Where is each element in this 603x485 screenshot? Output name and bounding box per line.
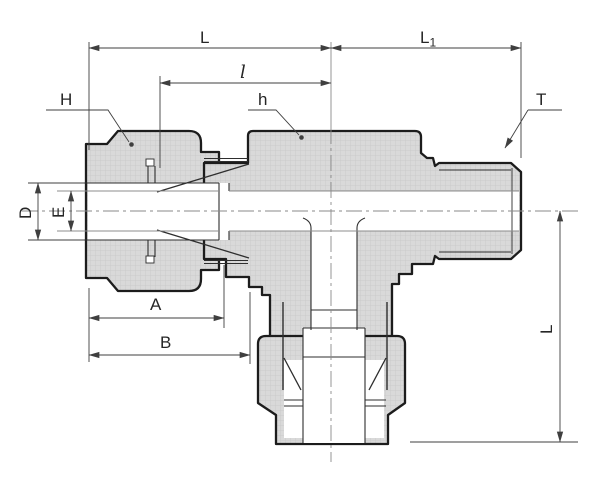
ferrule-detail-top	[146, 159, 154, 166]
bottom-gap-left	[284, 360, 303, 438]
label-L1-subscript: 1	[429, 36, 436, 50]
label-center-to-end-l: l	[240, 62, 246, 83]
fitting-body	[204, 131, 521, 360]
label-nut-length-A: A	[150, 295, 162, 314]
tube-end-gap	[219, 183, 229, 240]
label-tube-id-E: E	[49, 207, 68, 218]
leader-h-dot	[299, 135, 304, 140]
label-nut-hex-H: H	[60, 90, 72, 109]
label-thread-T: T	[536, 90, 546, 109]
label-overall-length-L: L	[200, 28, 209, 47]
label-right-length-L1: L1	[420, 28, 436, 50]
drawing-area: L L1 l H h T D E A B L	[0, 0, 603, 485]
bottom-tube-region	[303, 328, 365, 443]
branch-bore	[311, 222, 357, 332]
fitting-cross-section-diagram: L L1 l H h T D E A B L	[0, 0, 603, 485]
label-L1-base: L	[420, 28, 429, 47]
label-to-hex-B: B	[160, 333, 171, 352]
leader-T-arrow	[505, 110, 528, 148]
bottom-gap-right	[365, 360, 384, 438]
label-body-hex-h: h	[258, 90, 267, 109]
ferrule-detail-bottom	[146, 256, 154, 263]
label-tube-od-D: D	[16, 207, 35, 219]
leader-H-dot	[129, 142, 134, 147]
label-branch-height-L: L	[537, 325, 556, 334]
